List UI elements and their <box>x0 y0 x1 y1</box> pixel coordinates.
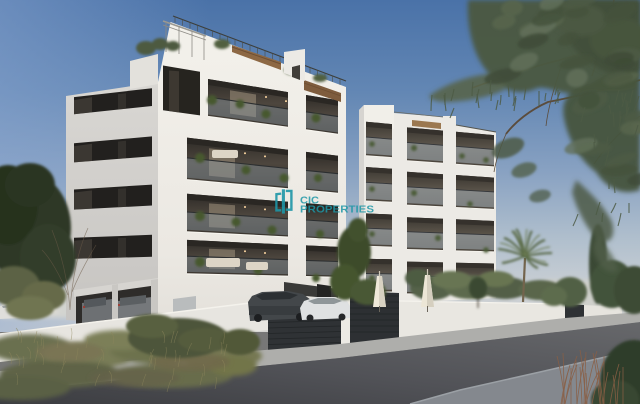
svg-text:PROPERTIES: PROPERTIES <box>300 205 374 216</box>
